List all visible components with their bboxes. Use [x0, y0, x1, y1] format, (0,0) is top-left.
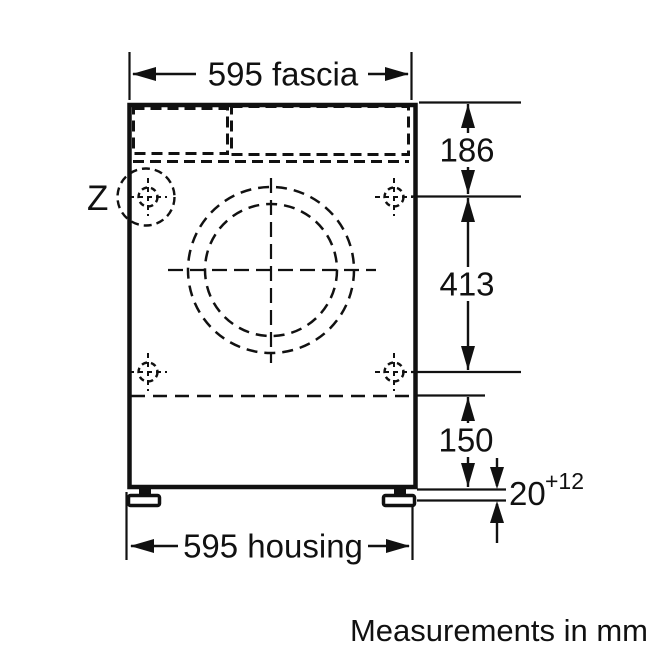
appliance-technical-drawing: Z 595 fascia 186	[0, 0, 650, 650]
arrow-down-icon	[461, 346, 475, 370]
fascia-width-label: 595 fascia	[208, 56, 359, 93]
housing-width-label: 595 housing	[183, 528, 363, 565]
arrow-right-icon	[385, 67, 409, 81]
installation-diagram: Z 595 fascia 186	[0, 0, 650, 650]
arrow-up-icon	[461, 198, 475, 222]
top-section-label: 186	[439, 132, 494, 169]
arrow-right-icon	[386, 539, 410, 553]
arrow-left-icon	[132, 67, 156, 81]
hole-span-label: 413	[439, 266, 494, 303]
arrow-up-icon	[461, 104, 475, 128]
dim-top-section: 186	[438, 104, 497, 194]
arrow-left-icon	[130, 539, 154, 553]
arrow-up-icon	[461, 397, 475, 421]
arrow-down-icon	[461, 170, 475, 194]
plinth-gap-tolerance: +12	[545, 468, 584, 494]
dim-bottom-section: 150	[438, 397, 497, 487]
measurements-note: Measurements in mm	[350, 613, 648, 648]
plinth-gap-label: 20 +12	[509, 468, 584, 512]
arrow-up-icon	[490, 501, 504, 523]
detail-z-label: Z	[87, 179, 108, 218]
dim-fascia-width: 595 fascia	[130, 52, 412, 100]
plinth-gap-nominal: 20	[509, 475, 546, 512]
arrow-down-icon	[490, 467, 504, 489]
dim-housing-width: 595 housing	[127, 492, 413, 565]
arrow-down-icon	[461, 463, 475, 487]
dim-hole-span: 413	[438, 198, 497, 370]
bottom-section-label: 150	[438, 422, 493, 459]
